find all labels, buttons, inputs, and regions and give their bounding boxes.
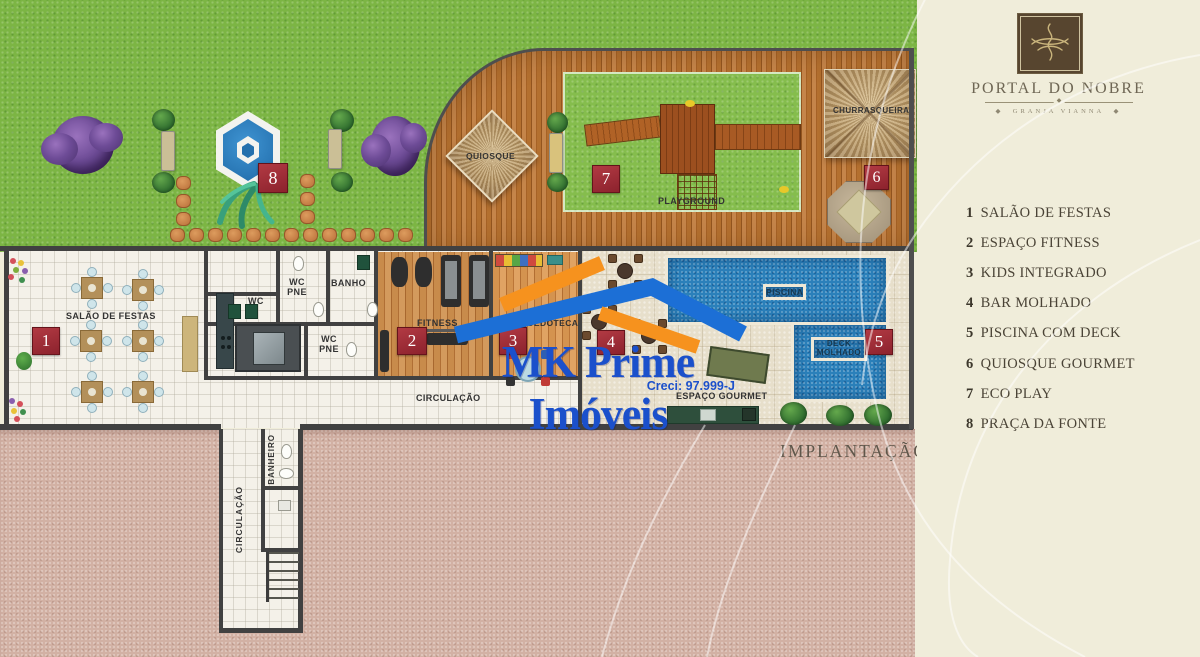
treadmill-belt (473, 261, 485, 299)
dumbbell-rack (380, 330, 389, 372)
ornament-rule (985, 102, 1133, 103)
party-chair (138, 269, 148, 279)
party-table (132, 381, 154, 403)
party-chair (87, 299, 97, 309)
wall-fitness-kids (489, 250, 493, 380)
party-table (81, 277, 103, 299)
garden-bench (328, 129, 342, 169)
wall-banho-left (326, 250, 330, 324)
party-table (132, 279, 154, 301)
wall-core-left (204, 250, 208, 376)
implantacao-caption: IMPLANTAÇÃO (780, 441, 928, 462)
site-plan-screenshot: PLAYGROUND 7 QUIOSQUE CHURRASQUEIRA 6 8 (0, 0, 1200, 657)
party-chair (103, 387, 113, 397)
party-chair (87, 267, 97, 277)
legend-item: 1SALÃO DE FESTAS (966, 198, 1192, 228)
legend-item: 5PISCINA COM DECK (966, 319, 1192, 349)
toilet-icon (293, 256, 304, 271)
salao-label: SALÃO DE FESTAS (66, 311, 156, 321)
stepping-stone (300, 192, 315, 206)
garden-bench (161, 131, 175, 171)
legend-item-number: 5 (966, 325, 974, 342)
stepping-stone (322, 228, 337, 242)
purple-tree (370, 116, 420, 176)
stepping-stone (300, 210, 315, 224)
toilet-icon (367, 302, 378, 317)
legend-item-number: 3 (966, 265, 974, 282)
wall-bottom-a (0, 424, 221, 430)
stepping-stone (265, 228, 280, 242)
corr-wall-left (219, 429, 223, 632)
party-chair (138, 371, 148, 381)
playground-label: PLAYGROUND (658, 196, 725, 206)
barbell (424, 329, 470, 332)
stepping-stone (300, 174, 315, 188)
garden-bush (152, 172, 175, 193)
wall-top (0, 246, 913, 251)
patio-chair (582, 331, 591, 340)
legend-item-number: 6 (966, 356, 974, 373)
patio-bush (780, 402, 807, 425)
flower-planter (9, 398, 15, 404)
stairs (266, 552, 299, 602)
toy-box (547, 255, 563, 265)
stepping-stone (379, 228, 394, 242)
media-screen (253, 332, 285, 365)
buffet-counter (182, 316, 198, 372)
stepping-stone (398, 228, 413, 242)
brand-subtitle-text: GRANJA VIANNA (1013, 108, 1104, 115)
info-panel: PORTAL DO NOBRE ◆ GRANJA VIANNA ◆ 1SALÃO… (917, 0, 1200, 657)
stepping-stone (176, 194, 191, 208)
party-chair (70, 336, 80, 346)
espaco-gourmet-label: ESPAÇO GOURMET (676, 391, 767, 401)
legend-item-label: ECO PLAY (981, 386, 1053, 403)
banho-label: BANHO (331, 278, 366, 288)
deck-bush (547, 112, 568, 133)
flower-planter (10, 258, 16, 264)
legend-item-number: 1 (966, 205, 974, 222)
brand-title: PORTAL DO NOBRE (917, 80, 1200, 98)
toilet-icon (313, 302, 324, 317)
circulacao-vert-label: CIRCULAÇÃO (234, 486, 244, 553)
exercise-bike (415, 257, 432, 287)
gourmet-grill (742, 408, 756, 421)
party-chair (86, 352, 96, 362)
legend-item-number: 7 (966, 386, 974, 403)
outside-ground (0, 429, 915, 657)
patio-chair (658, 345, 667, 354)
legend-item-number: 2 (966, 235, 974, 252)
deck-bush (547, 173, 568, 192)
amenities-legend: 1SALÃO DE FESTAS2ESPAÇO FITNESS3KIDS INT… (966, 198, 1192, 440)
piscina-label: PISCINA (763, 284, 806, 300)
corr-sink (278, 500, 291, 511)
stepping-stone (170, 228, 185, 242)
deck-molhado-label: DECK MOLHADO (811, 337, 867, 361)
party-chair (138, 403, 148, 413)
play-tower (660, 104, 715, 174)
stepping-stone (246, 228, 261, 242)
gourmet-sink (700, 409, 716, 421)
slide (584, 115, 662, 146)
party-chair (154, 387, 164, 397)
wall-wcpne2-left (304, 326, 308, 380)
garden-bush (152, 109, 175, 131)
sink-icon (245, 304, 258, 319)
bird-icon (685, 100, 695, 107)
sink-icon (357, 255, 370, 270)
patio-chair (634, 254, 643, 263)
kids-table (515, 356, 541, 382)
party-chair (103, 283, 113, 293)
circulacao-label: CIRCULAÇÃO (416, 393, 481, 403)
legend-item-label: PRAÇA DA FONTE (981, 416, 1107, 433)
legend-item-label: SALÃO DE FESTAS (981, 205, 1112, 222)
patio-chair (632, 345, 641, 354)
wall-kids-right (578, 250, 582, 430)
monkey-bars (715, 124, 801, 150)
party-chair (122, 336, 132, 346)
flourish-icon (1018, 14, 1082, 73)
patio-chair (658, 319, 667, 328)
party-chair (86, 320, 96, 330)
party-table (132, 330, 154, 352)
wall-left (4, 246, 9, 430)
brand-subtitle: ◆ GRANJA VIANNA ◆ (917, 107, 1200, 115)
stepping-stone (341, 228, 356, 242)
legend-item-number: 8 (966, 416, 974, 433)
toilet-icon (281, 444, 292, 459)
party-table (81, 381, 103, 403)
legend-item: 3KIDS INTEGRADO (966, 258, 1192, 288)
badge-5-piscina: 5 (865, 329, 893, 355)
treadmill-belt (445, 261, 457, 299)
banheiro-wall-mid (261, 486, 300, 490)
wc-label: WC (248, 296, 264, 306)
legend-item-label: PISCINA COM DECK (981, 325, 1121, 342)
stepping-stone (227, 228, 242, 242)
banheiro-label: BANHEIRO (267, 434, 276, 485)
legend-item: 2ESPAÇO FITNESS (966, 228, 1192, 258)
party-chair (122, 387, 132, 397)
party-chair (138, 352, 148, 362)
badge-2-fitness: 2 (397, 327, 427, 355)
legend-item: 6QUIOSQUE GOURMET (966, 349, 1192, 379)
badge-6-quiosque-gourmet: 6 (864, 165, 889, 190)
plant (16, 352, 32, 370)
garden-bush (331, 172, 353, 192)
party-chair (87, 403, 97, 413)
party-chair (71, 387, 81, 397)
deck-bench (549, 133, 563, 173)
exercise-bike (391, 257, 408, 287)
party-chair (154, 336, 164, 346)
legend-item: 4BAR MOLHADO (966, 289, 1192, 319)
badge-1-salao: 1 (32, 327, 60, 355)
patio-chair (582, 305, 591, 314)
badge-8-praca-da-fonte: 8 (258, 163, 288, 193)
stepping-stone (303, 228, 318, 242)
kids-chair (541, 350, 550, 359)
legend-item-number: 4 (966, 295, 974, 312)
party-chair (138, 301, 148, 311)
quiosque-label: QUIOSQUE (466, 151, 515, 161)
wc-pne-label: WC PNE (280, 277, 314, 297)
legend-item-label: QUIOSQUE GOURMET (981, 356, 1135, 373)
party-chair (154, 285, 164, 295)
legend-item-label: KIDS INTEGRADO (981, 265, 1107, 282)
purple-tree (52, 116, 114, 174)
party-chair (138, 320, 148, 330)
patio-chair (632, 319, 641, 328)
stove-burners (221, 336, 225, 340)
stepping-stone (176, 212, 191, 226)
toilet-icon (346, 342, 357, 357)
party-chair (122, 285, 132, 295)
stepping-stone (360, 228, 375, 242)
patio-bush (864, 404, 892, 426)
patio-bush (826, 405, 854, 426)
party-chair (102, 336, 112, 346)
brand-logo (1017, 13, 1083, 74)
patio-chair (634, 280, 643, 289)
stepping-stone (189, 228, 204, 242)
stepping-stone (176, 176, 191, 190)
badge-4-bar-molhado: 4 (597, 330, 625, 355)
badge-7-eco-play: 7 (592, 165, 620, 193)
patio-chair (608, 305, 617, 314)
wall-bottom-b (300, 424, 913, 430)
patio-chair (608, 280, 617, 289)
legend-item: 7ECO PLAY (966, 379, 1192, 409)
legend-item-label: ESPAÇO FITNESS (981, 235, 1100, 252)
wc-pne-2-label: WC PNE (312, 334, 346, 354)
plan-right-border (909, 48, 914, 429)
party-chair (87, 371, 97, 381)
patio-table (591, 314, 607, 330)
patio-table (617, 263, 633, 279)
stepping-stone (208, 228, 223, 242)
toy-shelf (495, 254, 543, 267)
corr-wall-bottom (219, 628, 303, 633)
kids-chair (541, 377, 550, 386)
patio-chair (608, 254, 617, 263)
stepping-stone (284, 228, 299, 242)
kids-chair (506, 377, 515, 386)
sink-icon (228, 304, 241, 319)
patio-table (641, 328, 657, 344)
party-chair (71, 283, 81, 293)
legend-item-label: BAR MOLHADO (981, 295, 1092, 312)
legend-item: 8PRAÇA DA FONTE (966, 409, 1192, 439)
bird-icon (779, 186, 789, 193)
party-table (80, 330, 102, 352)
toilet-icon (279, 468, 294, 479)
churrasqueira-label: CHURRASQUEIRA (833, 106, 909, 115)
bench-press (426, 333, 468, 345)
badge-3-kids: 3 (499, 327, 527, 355)
